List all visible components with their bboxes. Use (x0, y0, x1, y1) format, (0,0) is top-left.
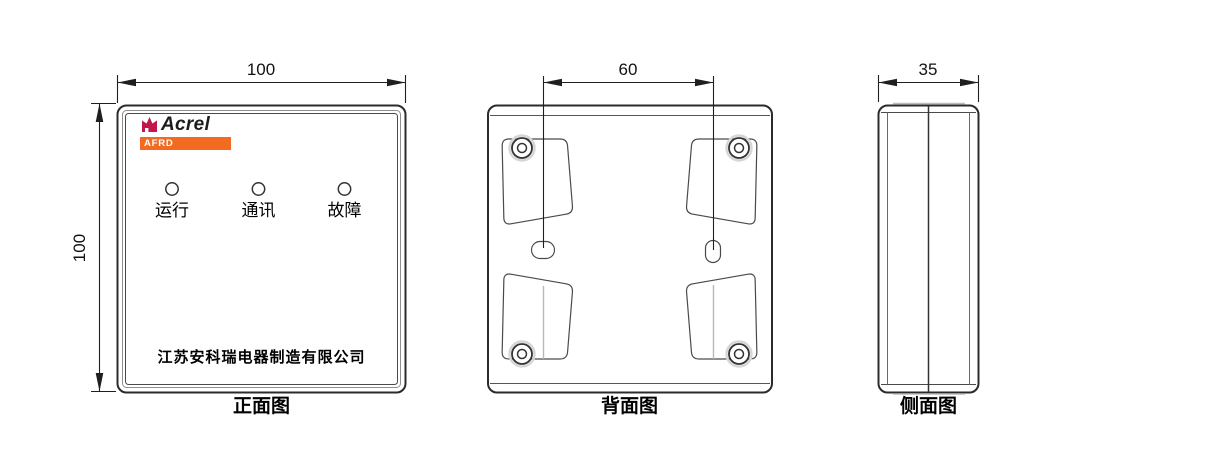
led-label-run: 运行 (140, 201, 204, 221)
side-depth-dimension-label: 35 (893, 60, 963, 80)
side-view-outline (879, 104, 979, 395)
brand-logo: Acrel (141, 114, 210, 136)
back-hole-spacing-dimension-label: 60 (593, 60, 663, 80)
led-label-comm: 通讯 (227, 201, 291, 221)
led-label-fault: 故障 (313, 201, 377, 221)
screw-icon (727, 136, 752, 161)
front-view-caption: 正面图 (117, 396, 406, 418)
back-view-caption: 背面图 (487, 396, 772, 418)
acrel-logo-icon (141, 116, 158, 134)
dimension-drawing-page: { "figure": { "front": { "caption": "正面图… (0, 0, 1212, 462)
side-view-caption: 侧面图 (878, 396, 979, 418)
front-width-dimension-label: 100 (226, 60, 296, 80)
front-view: Acrel AFRD 运行 通讯 故障 江苏安科瑞电器制造有限公司 (117, 105, 406, 393)
front-height-dimension-lines (91, 104, 116, 392)
brand-name: Acrel (161, 114, 210, 136)
front-height-dimension-label: 100 (70, 213, 90, 283)
company-name: 江苏安科瑞电器制造有限公司 (117, 346, 406, 367)
model-badge: AFRD (140, 137, 231, 150)
screw-icon (727, 342, 752, 367)
screw-icon (510, 136, 535, 161)
screw-icon (510, 342, 535, 367)
